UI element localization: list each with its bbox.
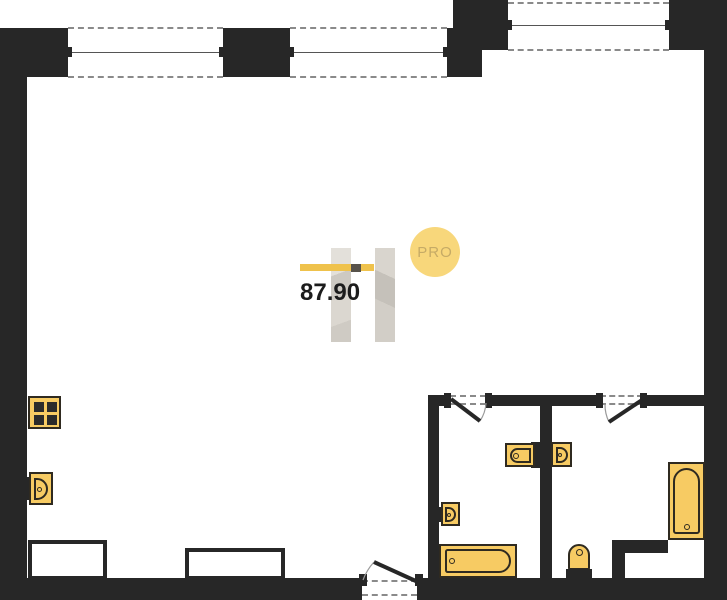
- washbasin-icon: [505, 443, 535, 467]
- window-1-outer-line: [68, 27, 223, 29]
- counter-1: [28, 540, 107, 580]
- bathtub-icon: [439, 544, 517, 578]
- entrance-door-threshold: [362, 594, 417, 596]
- pro-badge-label: PRO: [417, 244, 453, 261]
- bathroom-1-door-threshold: [450, 403, 486, 405]
- window-1-glass-line: [68, 52, 223, 53]
- window-mullion-tick: [504, 20, 512, 30]
- door-jamb: [640, 393, 647, 408]
- watermark-logo-bar: [375, 248, 395, 342]
- top-right-corner-wall: [669, 0, 727, 50]
- bathroom-top-wall-middle: [486, 395, 600, 406]
- bathroom-top-wall-right: [643, 395, 704, 406]
- window-3-glass-line: [508, 25, 669, 26]
- window-1-inner-line: [68, 76, 223, 78]
- bathroom-left-wall: [428, 395, 439, 580]
- toilet-seat: [576, 549, 583, 556]
- left-wall: [0, 28, 27, 600]
- door-swings: [0, 0, 727, 600]
- niche-wall-vertical: [612, 540, 625, 578]
- bathroom-2-door-threshold: [600, 403, 643, 405]
- bathroom-1-door-threshold: [450, 395, 486, 397]
- floor-plan: 87.90 PRO: [0, 0, 727, 600]
- window-mullion-tick: [665, 20, 673, 30]
- top-left-corner-wall: [0, 28, 68, 77]
- top-middle-wall: [453, 0, 508, 50]
- washbasin-icon: [441, 502, 460, 526]
- toilet-tank: [566, 569, 592, 581]
- window-mullion-tick: [219, 47, 227, 57]
- door-jamb: [596, 393, 603, 408]
- stove-burner: [34, 415, 44, 425]
- door-jamb: [359, 574, 367, 586]
- window-mullion-tick: [64, 47, 72, 57]
- window-3-outer-line: [508, 2, 669, 4]
- window-pier-wall: [223, 28, 290, 77]
- window-3-inner-line: [508, 49, 669, 51]
- sink-faucet: [513, 453, 519, 459]
- toilet-icon: [568, 544, 590, 570]
- bathtub-drain: [684, 524, 690, 530]
- stove-burner: [47, 402, 57, 412]
- sink-faucet: [558, 453, 562, 457]
- washbasin-icon: [551, 442, 572, 467]
- window-2-outer-line: [290, 27, 447, 29]
- window-2-inner-line: [290, 76, 447, 78]
- stove-burner: [34, 402, 44, 412]
- entrance-door-threshold: [362, 580, 417, 582]
- bathtub-icon: [668, 462, 705, 540]
- sink-faucet: [447, 513, 451, 517]
- bathroom-2-door-threshold: [600, 395, 643, 397]
- watermark-accent-line: [300, 264, 374, 271]
- stove-icon: [28, 396, 61, 429]
- area-label: 87.90: [300, 281, 360, 305]
- window-mullion-tick: [443, 47, 451, 57]
- right-wall: [704, 50, 727, 600]
- door-jamb: [415, 574, 423, 586]
- bathroom-divider-wall: [540, 406, 552, 578]
- sink-faucet: [37, 487, 42, 492]
- bathtub-drain: [449, 558, 455, 564]
- window-mullion-tick: [286, 47, 294, 57]
- stove-burner: [47, 415, 57, 425]
- window-2-glass-line: [290, 52, 447, 53]
- watermark-accent-notch: [351, 264, 361, 272]
- counter-2: [185, 548, 285, 580]
- kitchen-sink-icon: [29, 472, 53, 505]
- door-jamb: [444, 393, 451, 408]
- door-jamb: [485, 393, 492, 408]
- pro-badge: PRO: [410, 227, 460, 277]
